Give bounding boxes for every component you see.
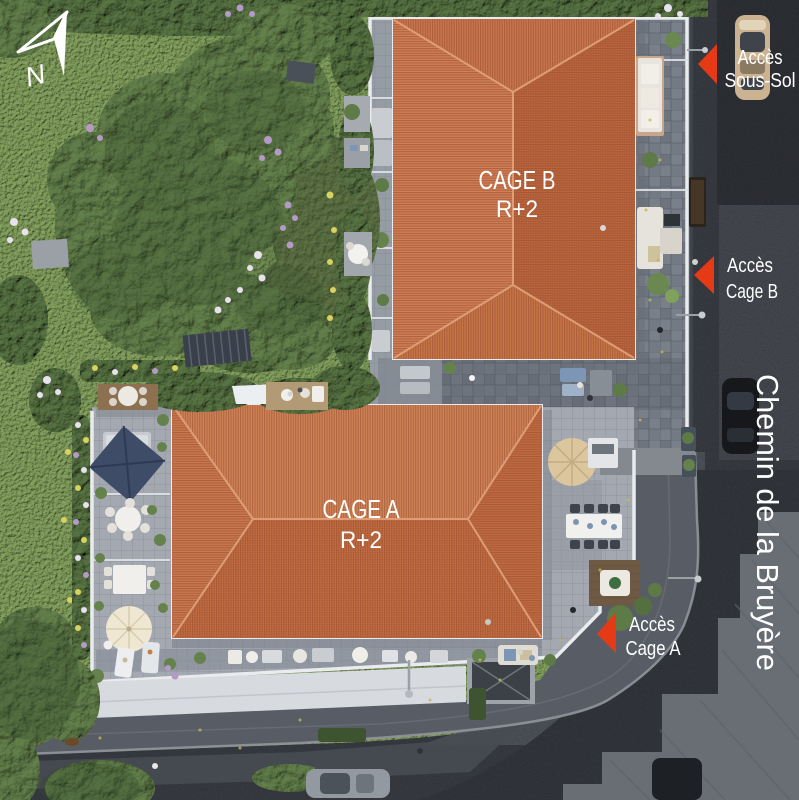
svg-text:Accès: Accès xyxy=(727,255,773,277)
svg-text:Sous-Sol: Sous-Sol xyxy=(725,70,796,92)
svg-text:Cage B: Cage B xyxy=(726,281,778,303)
svg-text:R+2: R+2 xyxy=(496,196,538,223)
svg-text:Cage A: Cage A xyxy=(626,638,682,660)
svg-text:CAGE A: CAGE A xyxy=(323,494,401,524)
svg-text:Accès: Accès xyxy=(629,614,675,636)
svg-text:Accès: Accès xyxy=(738,47,783,69)
svg-text:CAGE B: CAGE B xyxy=(479,165,556,195)
svg-text:Chemin de la Bruyère: Chemin de la Bruyère xyxy=(750,374,785,671)
svg-text:R+2: R+2 xyxy=(340,527,382,554)
